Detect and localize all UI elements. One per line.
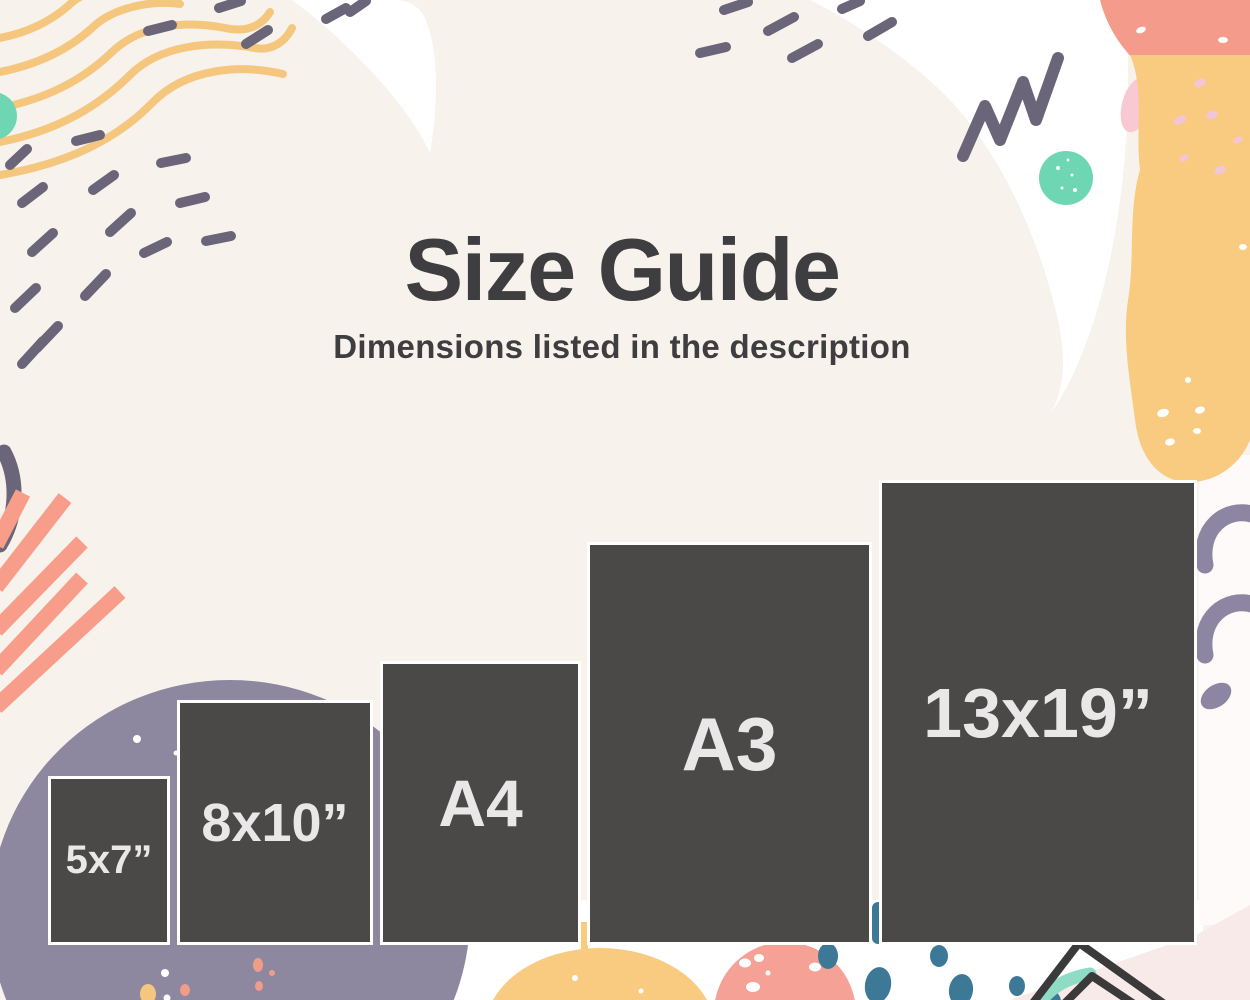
page-subtitle: Dimensions listed in the description xyxy=(0,330,1244,363)
size-box-8x10: 8x10” xyxy=(177,700,373,945)
header: Size Guide Dimensions listed in the desc… xyxy=(0,226,1244,363)
size-box-A4: A4 xyxy=(380,661,581,945)
size-box-A3: A3 xyxy=(587,542,872,945)
size-box-label: 8x10” xyxy=(201,792,348,854)
size-box-label: 13x19” xyxy=(923,673,1153,753)
size-boxes: 5x7”8x10”A4A313x19” xyxy=(0,0,1250,1000)
size-box-13x19: 13x19” xyxy=(879,480,1197,945)
page-title: Size Guide xyxy=(0,226,1244,314)
size-guide-graphic: 5x7”8x10”A4A313x19” Size Guide Dimension… xyxy=(0,0,1250,1000)
size-box-label: A3 xyxy=(682,701,778,787)
size-box-label: A4 xyxy=(438,765,522,841)
size-box-label: 5x7” xyxy=(66,838,153,883)
size-box-5x7: 5x7” xyxy=(48,776,170,945)
